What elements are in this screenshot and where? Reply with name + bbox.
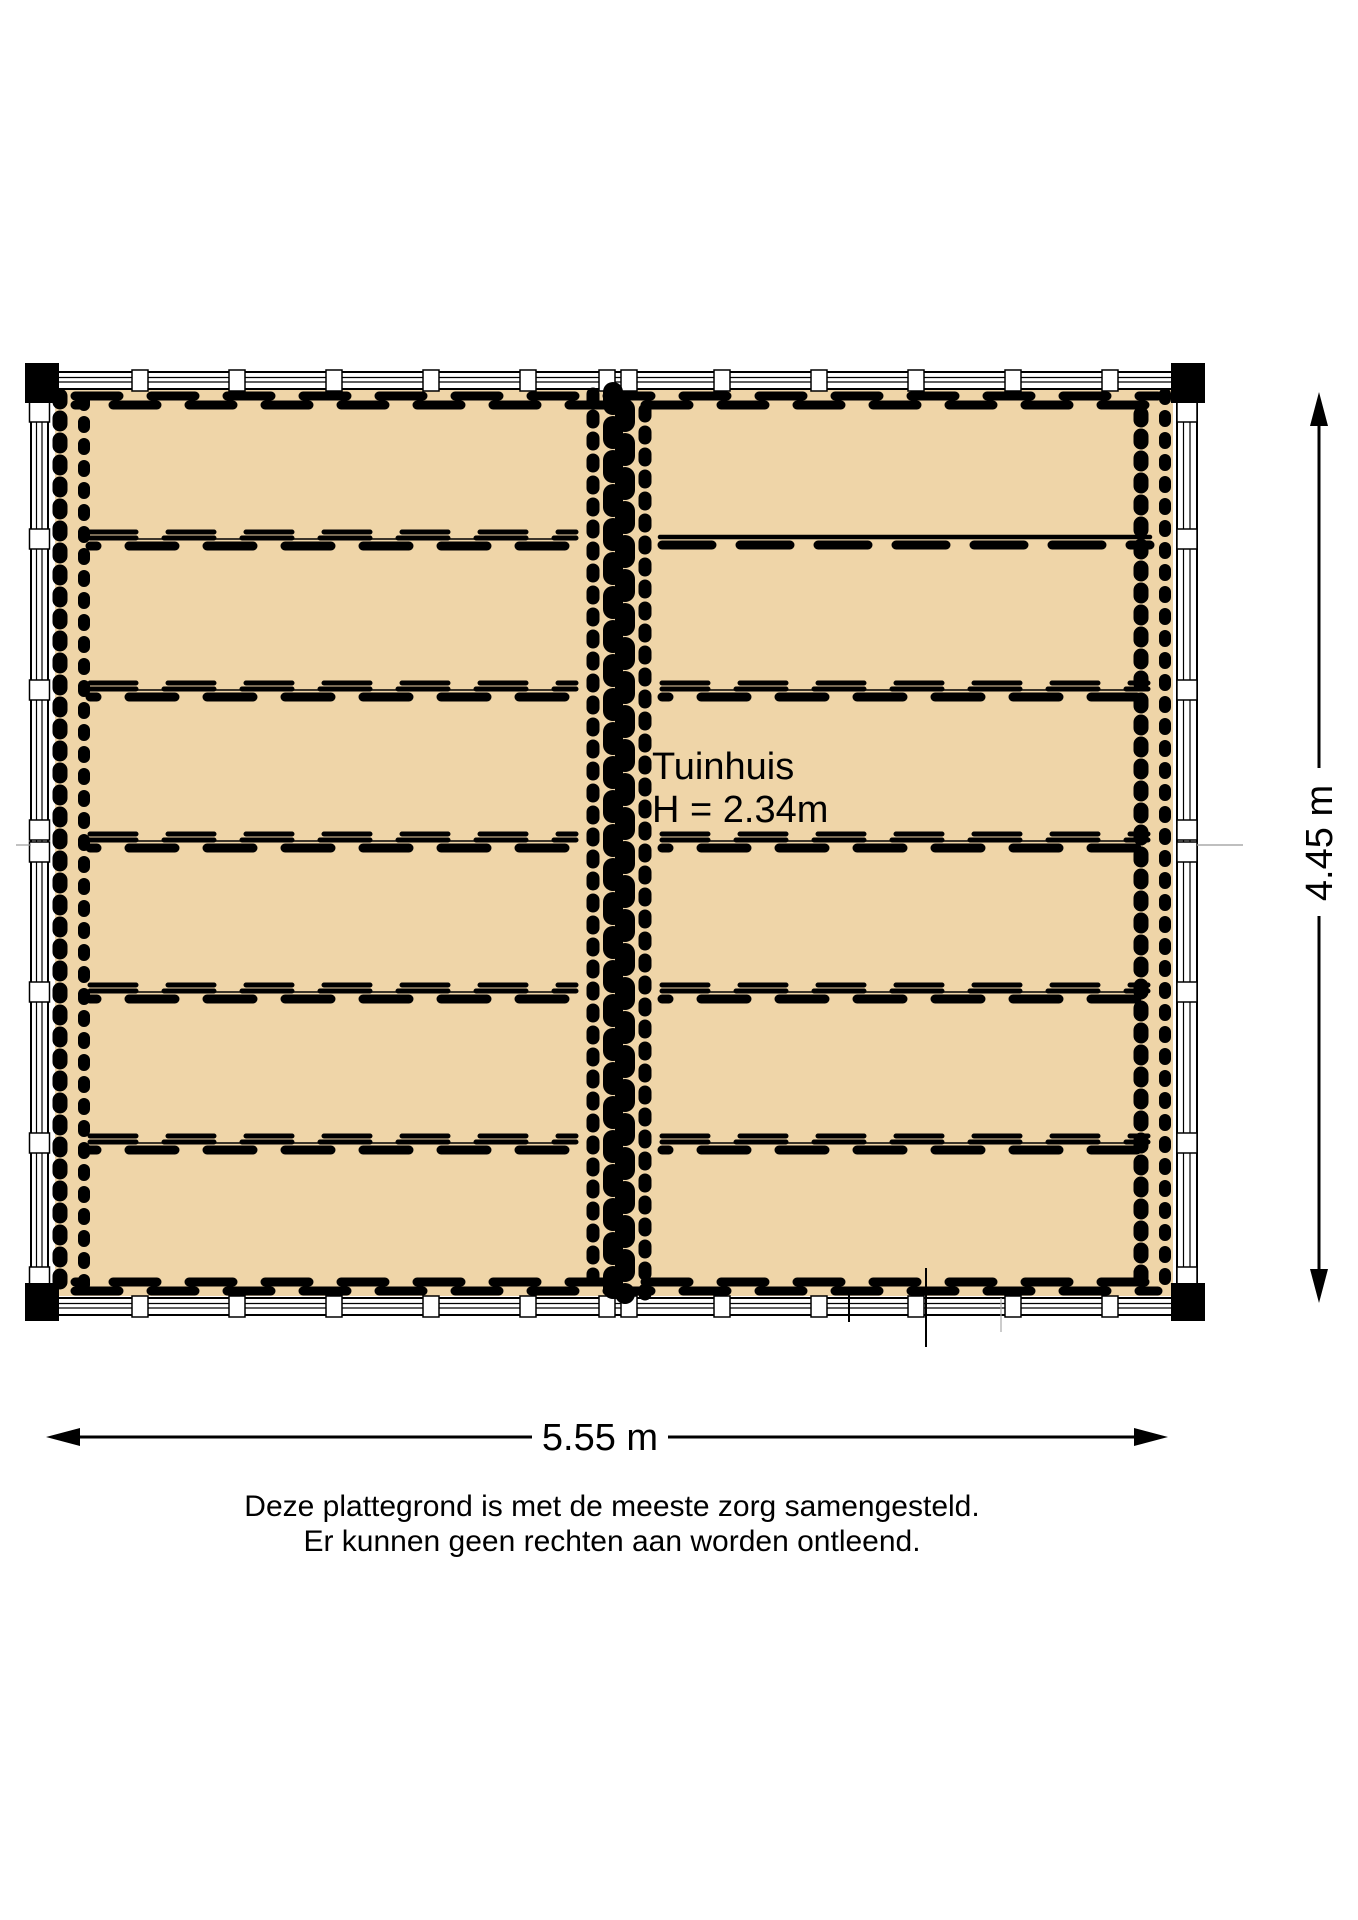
- room-name-label: Tuinhuis: [652, 746, 794, 788]
- width-dimension-label: 5.55 m: [542, 1417, 658, 1459]
- disclaimer-line-1: Deze plattegrond is met de meeste zorg s…: [244, 1490, 979, 1523]
- disclaimer-line-2: Er kunnen geen rechten aan worden ontlee…: [303, 1525, 920, 1558]
- room-height-label: H = 2.34m: [652, 789, 828, 831]
- height-dimension-label: 4.45 m: [1299, 785, 1341, 901]
- floor-plan-page: Tuinhuis H = 2.34m 5.55 m 4.45 m Deze pl…: [0, 0, 1358, 1920]
- floor-plan-drawing: Tuinhuis H = 2.34m 5.55 m 4.45 m Deze pl…: [0, 0, 1358, 1920]
